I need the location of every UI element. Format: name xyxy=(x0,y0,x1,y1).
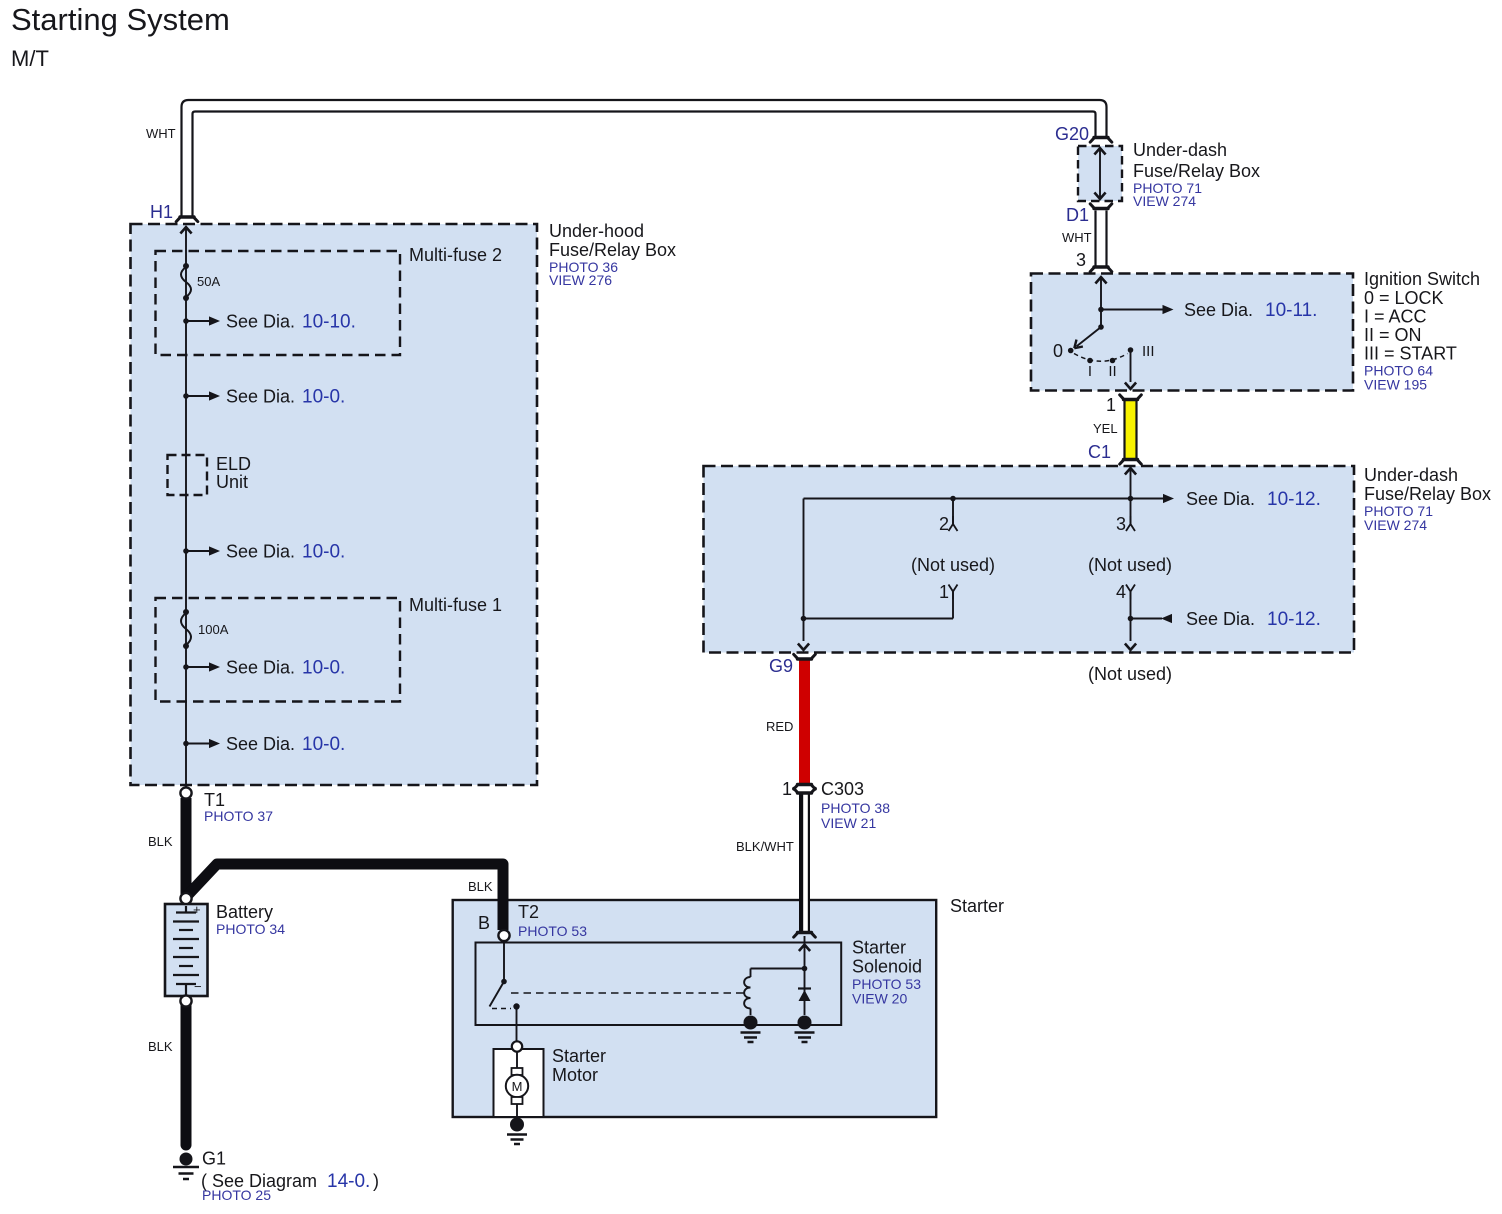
svg-text:ELD: ELD xyxy=(216,454,251,474)
svg-text:10-0.: 10-0. xyxy=(302,387,345,408)
svg-text:C1: C1 xyxy=(1088,442,1111,462)
svg-text:Battery: Battery xyxy=(216,902,273,922)
svg-text:14-0.: 14-0. xyxy=(327,1171,370,1192)
svg-text:YEL: YEL xyxy=(1093,421,1118,436)
svg-text:PHOTO 25: PHOTO 25 xyxy=(202,1187,271,1203)
svg-text:Multi-fuse 1: Multi-fuse 1 xyxy=(409,595,502,615)
svg-text:II = ON: II = ON xyxy=(1364,325,1422,345)
svg-text:I: I xyxy=(1088,363,1092,380)
svg-text:VIEW 274: VIEW 274 xyxy=(1133,193,1196,209)
svg-text:BLK: BLK xyxy=(148,834,173,849)
svg-text:II: II xyxy=(1108,363,1116,380)
svg-text:See Dia.: See Dia. xyxy=(1186,609,1255,629)
svg-text:VIEW 21: VIEW 21 xyxy=(821,815,876,831)
svg-text:See Dia.: See Dia. xyxy=(226,734,295,754)
svg-text:Under-dash: Under-dash xyxy=(1133,140,1227,160)
svg-text:BLK/WHT: BLK/WHT xyxy=(736,839,794,854)
svg-text:PHOTO 38: PHOTO 38 xyxy=(821,800,890,816)
svg-text:VIEW 195: VIEW 195 xyxy=(1364,377,1427,393)
svg-text:Under-dash: Under-dash xyxy=(1364,465,1458,485)
svg-text:Starting System: Starting System xyxy=(11,2,230,37)
svg-text:0: 0 xyxy=(1053,341,1063,361)
svg-text:Unit: Unit xyxy=(216,472,248,492)
svg-text:+: + xyxy=(193,902,201,917)
svg-text:III: III xyxy=(1142,343,1155,360)
svg-text:10-10.: 10-10. xyxy=(302,312,356,333)
svg-text:1: 1 xyxy=(939,582,949,602)
svg-text:10-0.: 10-0. xyxy=(302,542,345,563)
svg-text:PHOTO 37: PHOTO 37 xyxy=(204,808,273,824)
svg-text:See Dia.: See Dia. xyxy=(226,542,295,562)
svg-text:III = START: III = START xyxy=(1364,344,1457,364)
svg-text:WHT: WHT xyxy=(1062,230,1092,245)
svg-text:VIEW 20: VIEW 20 xyxy=(852,991,907,1007)
svg-text:(Not used): (Not used) xyxy=(1088,555,1172,575)
svg-text:M/T: M/T xyxy=(11,46,49,71)
svg-text:WHT: WHT xyxy=(146,126,176,141)
svg-text:M: M xyxy=(512,1079,523,1094)
svg-text:BLK: BLK xyxy=(468,879,493,894)
svg-text:50A: 50A xyxy=(197,274,220,289)
svg-text:10-12.: 10-12. xyxy=(1267,489,1321,510)
svg-text:BLK: BLK xyxy=(148,1039,173,1054)
svg-text:0 = LOCK: 0 = LOCK xyxy=(1364,288,1444,308)
svg-text:2: 2 xyxy=(939,514,949,534)
svg-text:G1: G1 xyxy=(202,1149,226,1169)
svg-text:PHOTO 53: PHOTO 53 xyxy=(518,923,587,939)
svg-text:See Dia.: See Dia. xyxy=(226,658,295,678)
svg-text:(Not used): (Not used) xyxy=(1088,664,1172,684)
svg-text:Fuse/Relay Box: Fuse/Relay Box xyxy=(1133,161,1260,181)
svg-text:4: 4 xyxy=(1116,582,1126,602)
svg-text:Multi-fuse 2: Multi-fuse 2 xyxy=(409,245,502,265)
svg-text:10-11.: 10-11. xyxy=(1265,300,1317,321)
svg-text:Solenoid: Solenoid xyxy=(852,957,922,977)
svg-text:PHOTO 34: PHOTO 34 xyxy=(216,921,285,937)
svg-text:Fuse/Relay Box: Fuse/Relay Box xyxy=(1364,484,1491,504)
svg-text:G20: G20 xyxy=(1055,124,1089,144)
svg-text:D1: D1 xyxy=(1066,205,1089,225)
svg-text:C303: C303 xyxy=(821,779,864,799)
svg-text:See Dia.: See Dia. xyxy=(1184,300,1253,320)
svg-text:B: B xyxy=(478,913,490,933)
svg-text:Ignition Switch: Ignition Switch xyxy=(1364,269,1480,289)
svg-text:VIEW 276: VIEW 276 xyxy=(549,272,612,288)
svg-text:I = ACC: I = ACC xyxy=(1364,307,1427,327)
svg-text:Starter: Starter xyxy=(852,938,906,958)
svg-text:Under-hood: Under-hood xyxy=(549,221,644,241)
svg-text:See Dia.: See Dia. xyxy=(226,387,295,407)
svg-text:See Dia.: See Dia. xyxy=(1186,489,1255,509)
svg-text:T1: T1 xyxy=(204,790,225,810)
svg-text:(Not used): (Not used) xyxy=(911,555,995,575)
svg-text:3: 3 xyxy=(1076,250,1086,270)
svg-text:T2: T2 xyxy=(518,902,539,922)
svg-text:): ) xyxy=(373,1171,379,1191)
svg-text:Motor: Motor xyxy=(552,1065,598,1085)
svg-text:Starter: Starter xyxy=(552,1046,606,1066)
svg-text:3: 3 xyxy=(1116,514,1126,534)
svg-text:1: 1 xyxy=(1106,395,1116,415)
svg-text:Fuse/Relay Box: Fuse/Relay Box xyxy=(549,240,676,260)
svg-text:−: − xyxy=(194,979,202,994)
svg-text:RED: RED xyxy=(766,719,793,734)
svg-text:H1: H1 xyxy=(150,202,173,222)
svg-text:100A: 100A xyxy=(198,622,229,637)
svg-text:10-0.: 10-0. xyxy=(302,658,345,679)
svg-text:G9: G9 xyxy=(769,656,793,676)
svg-text:10-0.: 10-0. xyxy=(302,734,345,755)
svg-text:10-12.: 10-12. xyxy=(1267,609,1321,630)
svg-text:1: 1 xyxy=(782,779,792,799)
svg-text:Starter: Starter xyxy=(950,896,1004,916)
svg-text:VIEW 274: VIEW 274 xyxy=(1364,517,1427,533)
svg-text:See Dia.: See Dia. xyxy=(226,312,295,332)
